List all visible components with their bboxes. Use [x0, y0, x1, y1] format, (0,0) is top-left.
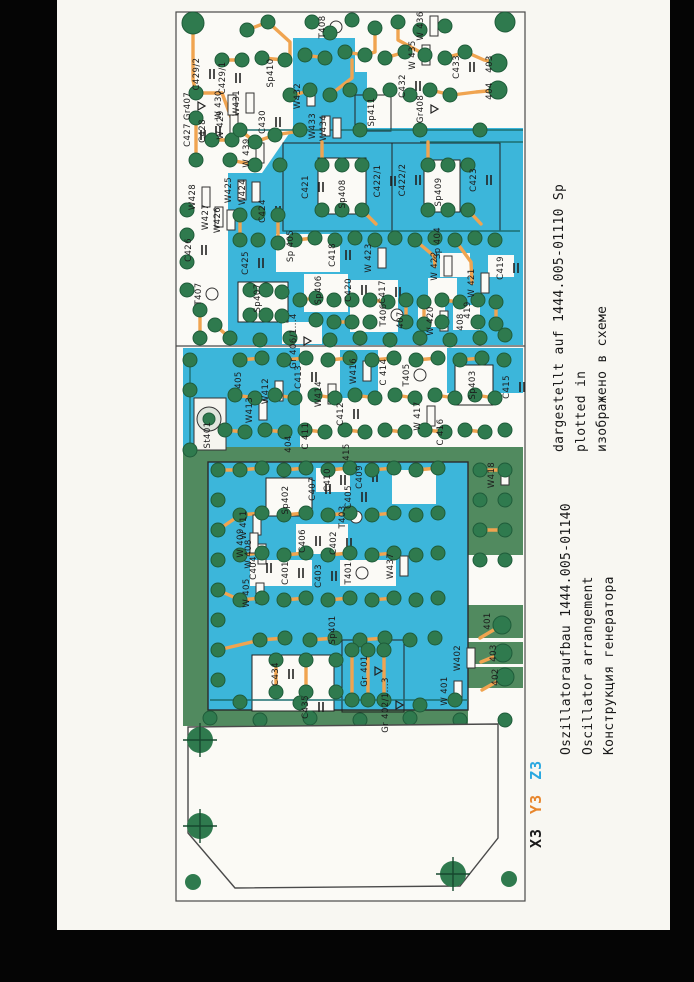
- caption-title-block: Oszillatoraufbau 1444.005-01140 Oscillat…: [556, 503, 621, 755]
- connector-label: Z3: [527, 760, 545, 780]
- pcb-diagram: [0, 0, 694, 982]
- caption-note-russian: изображено в схеме: [592, 184, 614, 452]
- corner-pad: [185, 874, 201, 890]
- caption-note-german: dargestellt auf 1444.005-01110 Sp: [549, 184, 571, 452]
- caption-title-german: Oszillatoraufbau 1444.005-01140: [556, 503, 578, 755]
- connector-label: X3: [527, 828, 545, 848]
- caption-note-block: dargestellt auf 1444.005-01110 Sp plotte…: [549, 184, 614, 452]
- connector-designators: X3Y3Z3: [527, 746, 545, 848]
- caption-note-english: plotted in: [571, 184, 593, 452]
- shield-area: [183, 723, 517, 891]
- caption-title-russian: Конструкция генератора: [599, 503, 621, 755]
- corner-pad: [501, 871, 517, 887]
- caption-title-english: Oscillator arrangement: [578, 503, 600, 755]
- connector-label: Y3: [527, 794, 545, 814]
- scanned-manual-page: C428W431T408C433W 436W 435C429/2C429/1Sp…: [0, 0, 694, 982]
